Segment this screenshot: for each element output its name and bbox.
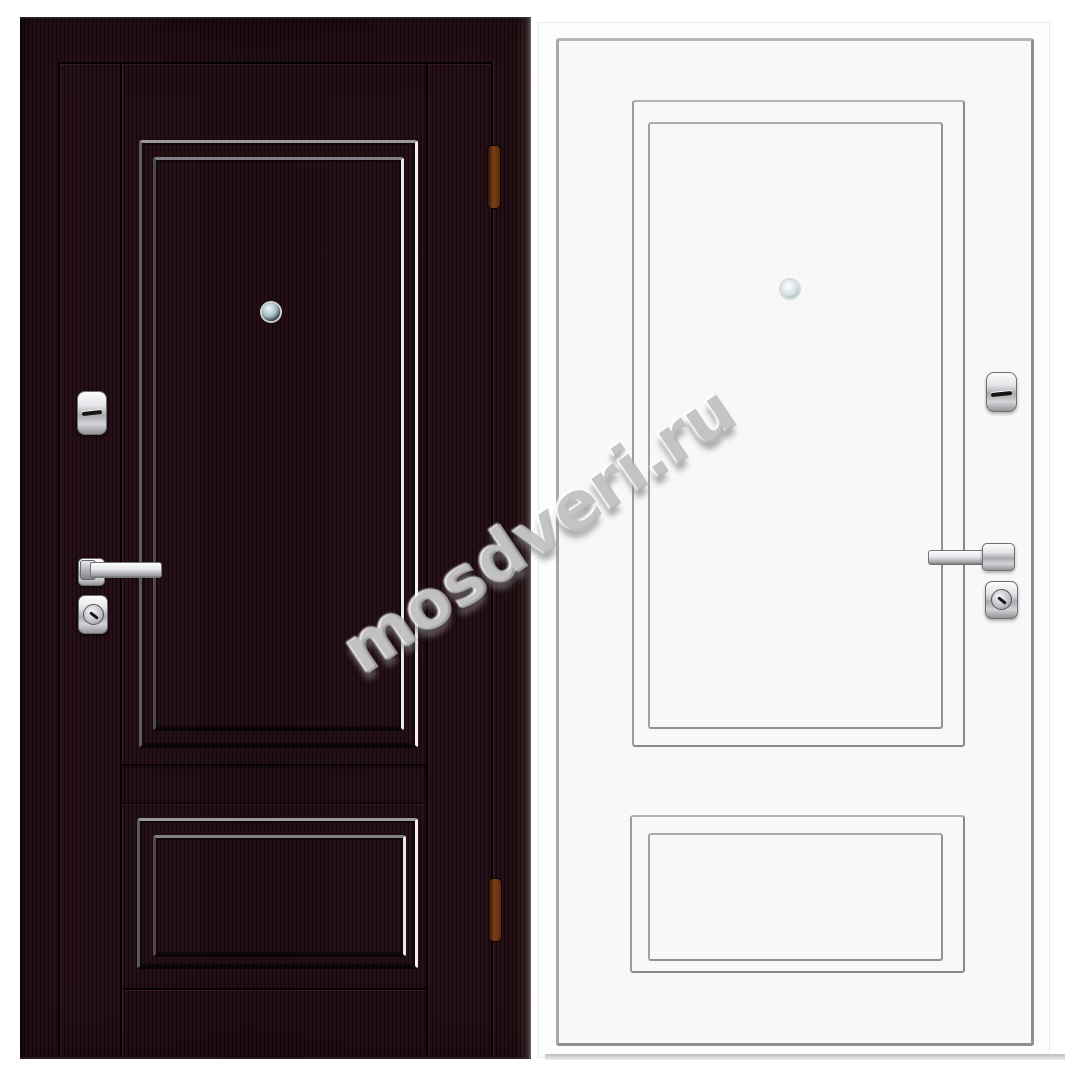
lower-panel-molding-inner [648,833,943,961]
lower-panel-molding-inner [153,835,406,957]
hinge-top [487,145,501,209]
lock-cylinder-escutcheon [985,581,1018,619]
lock-cylinder [83,604,104,625]
handle-rose [982,543,1015,571]
mid-rail-recess [121,764,427,804]
door-bottom-shadow [545,1054,1065,1060]
thumbturn-slot [82,410,102,416]
lock-cylinder-escutcheon [78,595,108,634]
upper-panel-molding-inner [648,122,943,729]
peephole [262,303,280,321]
door-handle-lever [90,562,162,578]
lock-cylinder [991,589,1012,610]
deadbolt-thumbturn [986,372,1017,412]
bottom-rail-groove [120,988,428,990]
peephole [781,280,799,298]
deadbolt-thumbturn [77,391,107,435]
door-exterior-side [20,17,531,1059]
left-stile-groove-inner [120,62,122,1056]
left-stile-groove-outer [58,62,60,1056]
door-interior-side [538,22,1050,1058]
hinge-bottom [488,878,502,942]
door-product-photo: mosdveri.ru [0,0,1073,1067]
door-interior-face [556,38,1034,1046]
right-stile-groove-inner [426,62,428,1056]
upper-panel-molding-inner [153,157,404,731]
keyhole [89,611,99,620]
keyhole [997,596,1007,605]
thumbturn-slot [991,391,1012,397]
